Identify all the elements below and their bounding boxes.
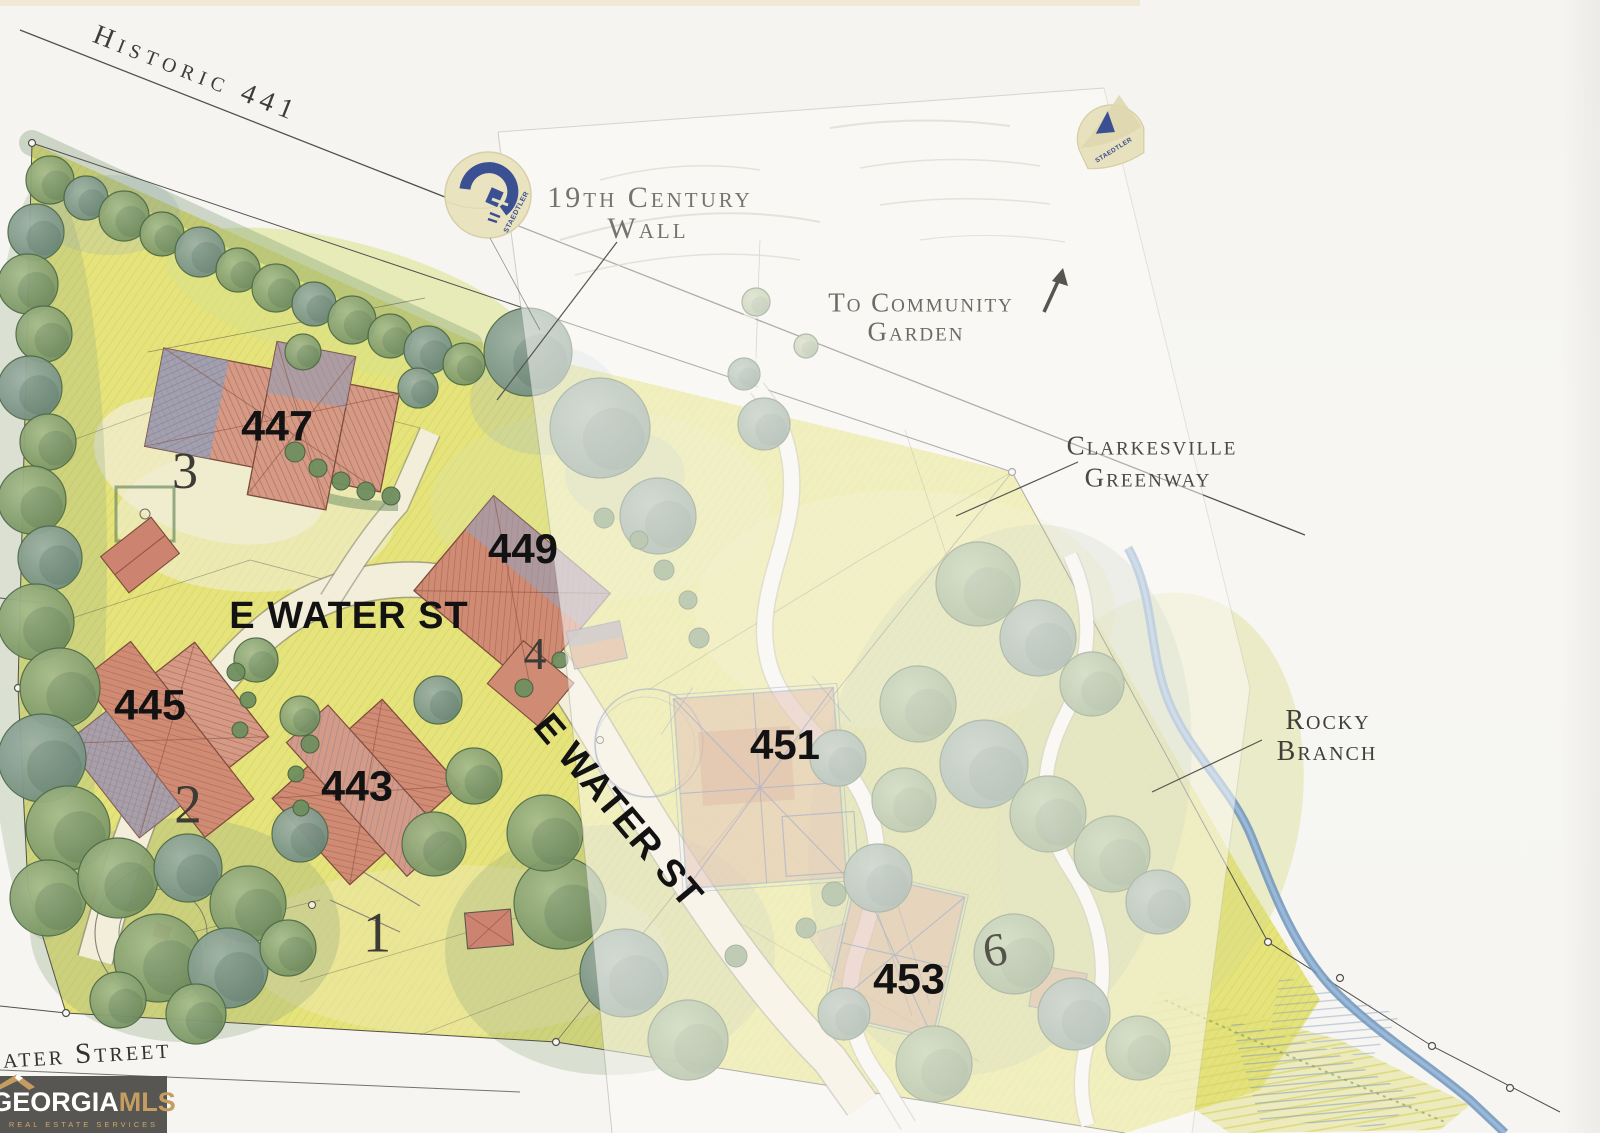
label-to-community-garden-line2: Garden bbox=[868, 319, 965, 346]
tree bbox=[0, 356, 62, 420]
bush bbox=[232, 722, 248, 738]
bush bbox=[293, 800, 309, 816]
bush bbox=[240, 692, 256, 708]
label-address-453: 453 bbox=[873, 959, 945, 1002]
tree bbox=[443, 343, 485, 385]
bush bbox=[288, 766, 304, 782]
tree bbox=[446, 748, 502, 804]
label-19th-century-wall-line1: 19th Century bbox=[547, 183, 753, 213]
bush bbox=[332, 472, 350, 490]
label-to-community-garden-line1: To Community bbox=[828, 290, 1014, 317]
bush bbox=[301, 735, 319, 753]
tree bbox=[280, 696, 320, 736]
bush bbox=[309, 459, 327, 477]
tree bbox=[285, 334, 321, 370]
label-lot-1: 1 bbox=[363, 905, 392, 962]
site-plan-drawing: STAEDTLER STAEDTLER bbox=[0, 0, 1600, 1133]
label-lot-3: 3 bbox=[172, 446, 198, 498]
tree bbox=[18, 526, 82, 590]
logo-tagline: REAL ESTATE SERVICES bbox=[9, 1120, 158, 1129]
tree bbox=[16, 306, 72, 362]
label-address-443: 443 bbox=[321, 766, 393, 809]
tree bbox=[0, 254, 58, 314]
logo-brand-secondary: MLS bbox=[119, 1087, 176, 1118]
tree bbox=[0, 466, 66, 534]
georgia-mls-logo: GEORGIAMLS REAL ESTATE SERVICES bbox=[0, 1076, 167, 1133]
scan-edge-shadow bbox=[1560, 0, 1600, 1133]
label-lot-4: 4 bbox=[524, 631, 547, 677]
tree bbox=[507, 795, 583, 871]
tree bbox=[78, 838, 158, 918]
logo-brand-primary: GEORGIA bbox=[0, 1087, 119, 1118]
tree bbox=[402, 812, 466, 876]
logo-roof-icon bbox=[0, 1074, 35, 1090]
tree bbox=[414, 676, 462, 724]
bush bbox=[227, 663, 245, 681]
label-e-water-st-horizontal: E WATER ST bbox=[229, 597, 468, 635]
tree bbox=[90, 972, 146, 1028]
tree bbox=[8, 204, 64, 260]
tree bbox=[10, 860, 86, 936]
bush bbox=[382, 487, 400, 505]
bush bbox=[515, 679, 533, 697]
label-lot-2: 2 bbox=[174, 777, 202, 832]
label-address-445: 445 bbox=[114, 685, 186, 728]
label-address-451: 451 bbox=[750, 724, 820, 766]
label-clarkesville-greenway-line2: Greenway bbox=[1085, 465, 1212, 492]
label-19th-century-wall-line2: Wall bbox=[607, 214, 688, 244]
label-address-447: 447 bbox=[241, 406, 313, 449]
label-rocky-branch-line2: Branch bbox=[1277, 738, 1378, 766]
staedtler-sticker-round: STAEDTLER bbox=[445, 152, 531, 238]
shed-lot1 bbox=[465, 909, 514, 949]
label-clarkesville-greenway-line1: Clarkesville bbox=[1067, 433, 1238, 460]
tree bbox=[166, 984, 226, 1044]
label-address-449: 449 bbox=[488, 528, 558, 570]
tree bbox=[398, 368, 438, 408]
tree bbox=[260, 920, 316, 976]
tree bbox=[20, 414, 76, 470]
site-plan-page: STAEDTLER STAEDTLER Historic 441 19th Ce… bbox=[0, 0, 1600, 1133]
label-rocky-branch-line1: Rocky bbox=[1285, 707, 1370, 735]
bush bbox=[357, 482, 375, 500]
